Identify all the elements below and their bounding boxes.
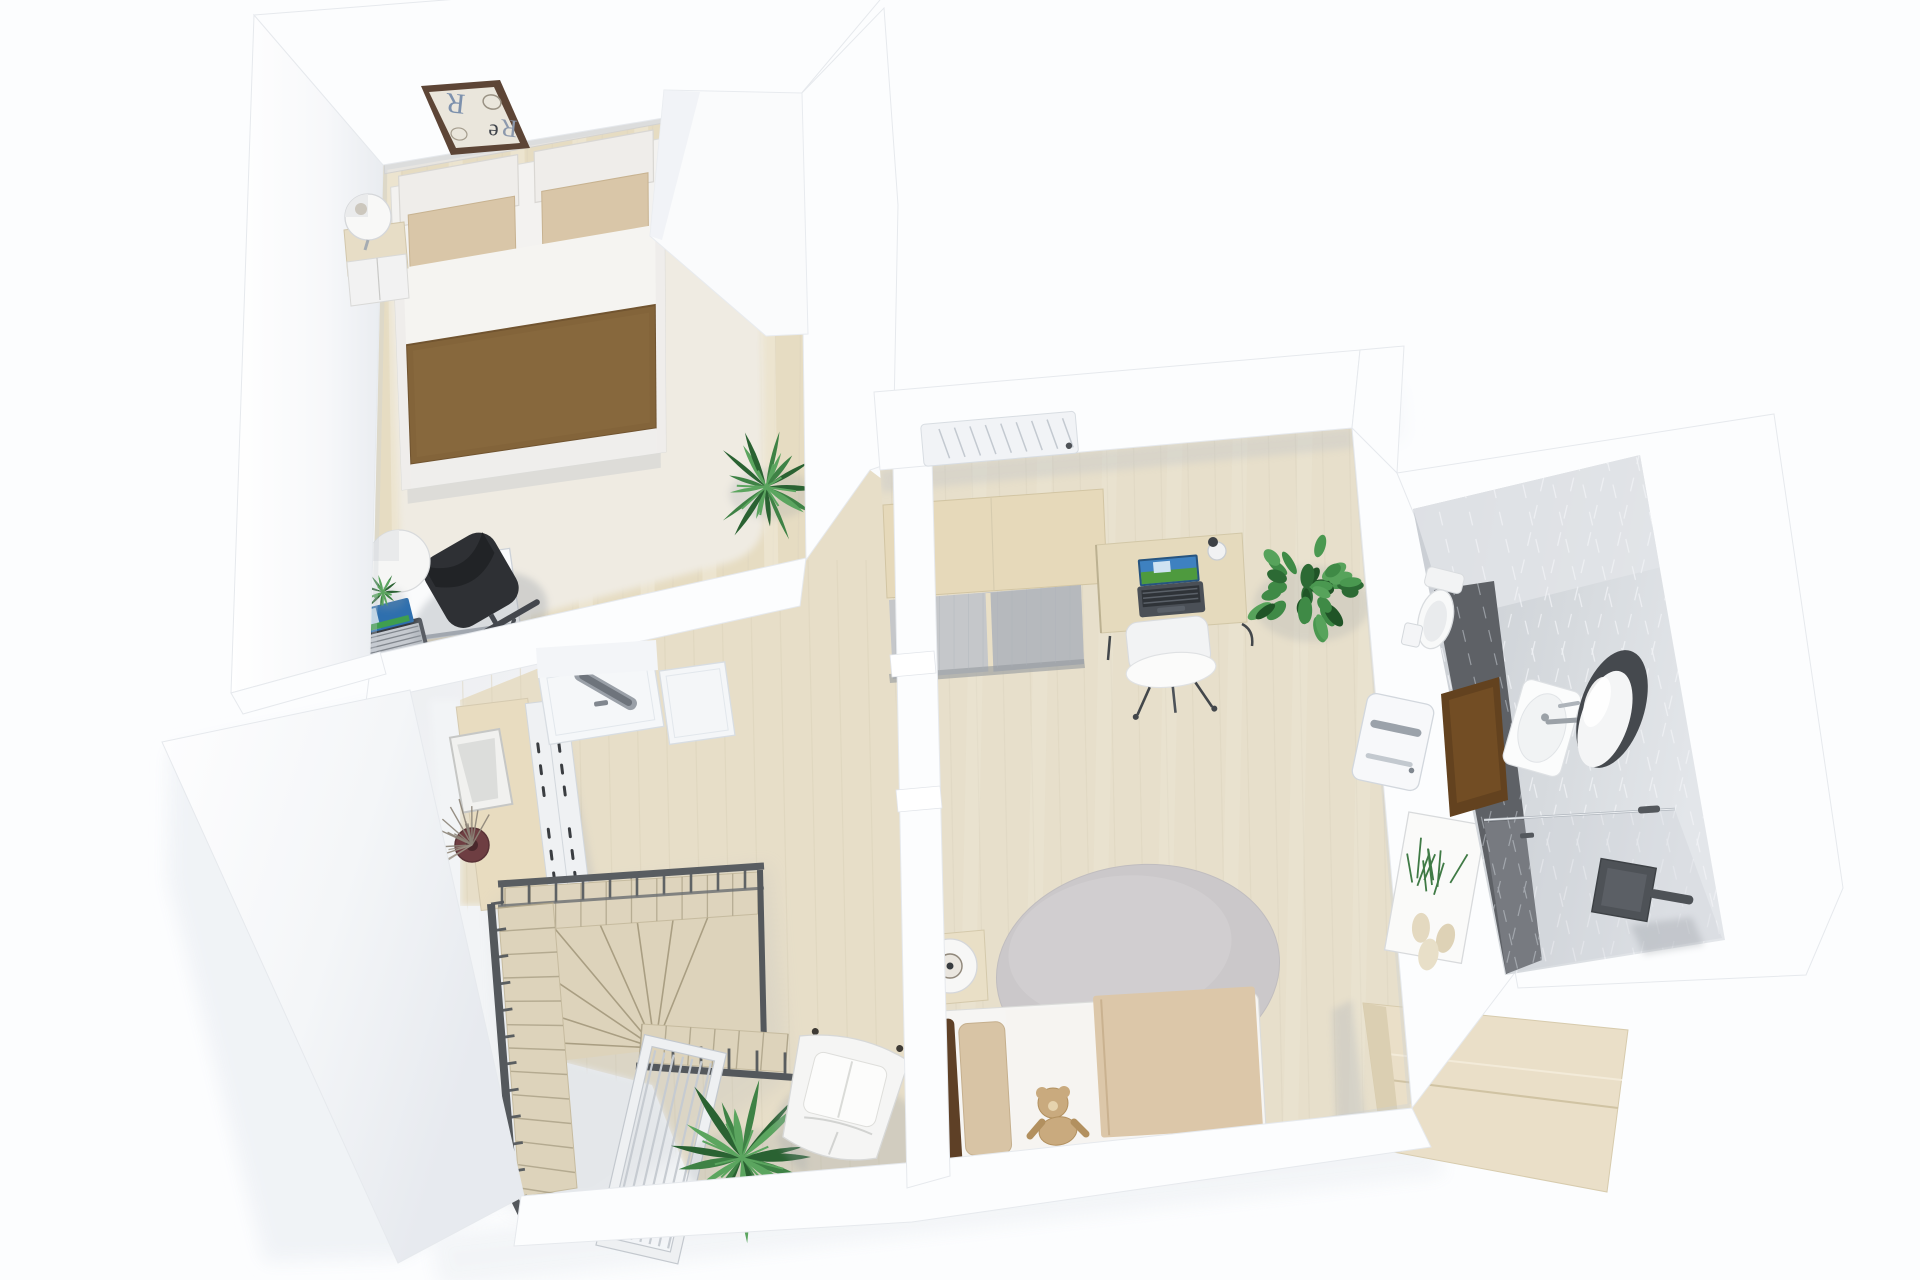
svg-text:R: R: [499, 113, 519, 142]
svg-text:e: e: [487, 119, 499, 145]
svg-text:R: R: [443, 86, 466, 120]
